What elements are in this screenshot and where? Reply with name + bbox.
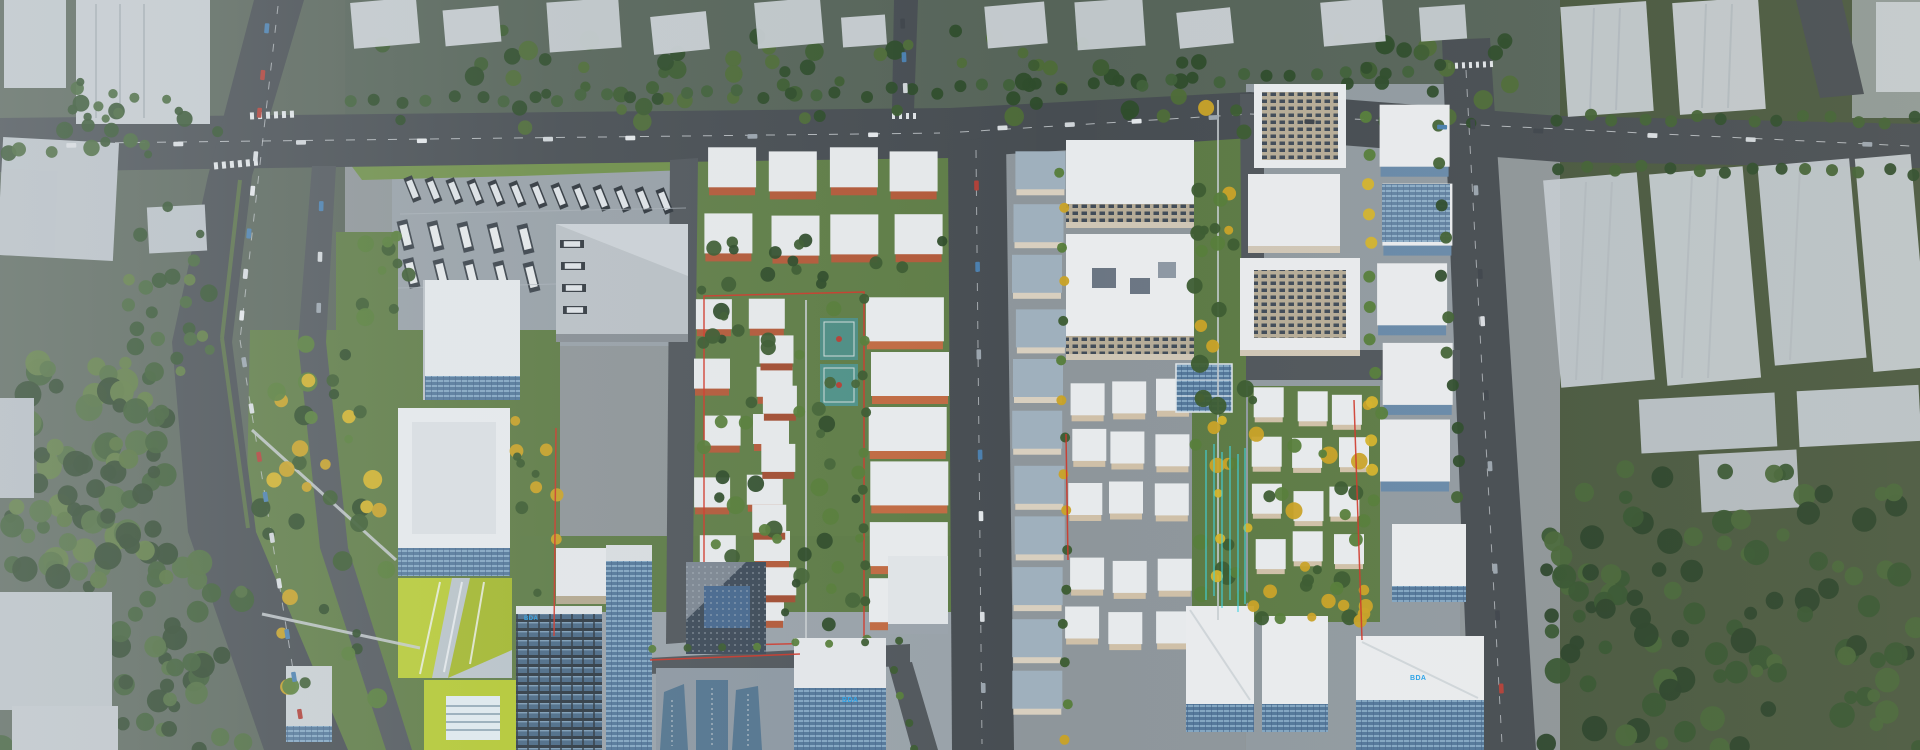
masterplan-scene: BDABDABDA xyxy=(0,0,1920,750)
layer-markings: BDABDABDA xyxy=(0,0,1920,750)
aerial-masterplan-render: BDABDABDA xyxy=(0,0,1920,750)
